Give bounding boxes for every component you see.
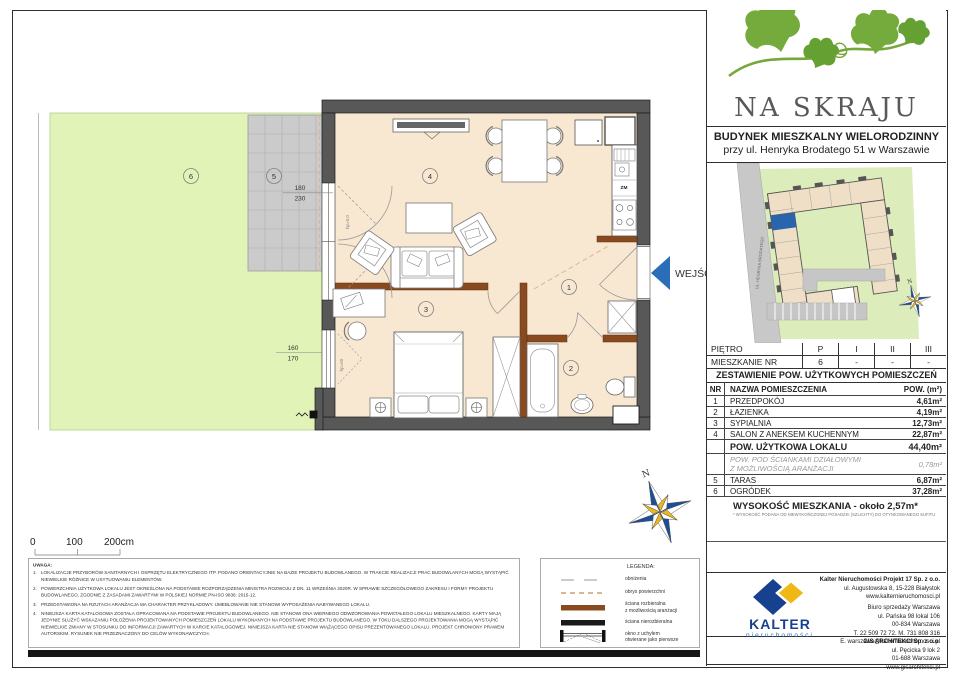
sill-height-terrace: hp=0,0	[345, 215, 350, 229]
note-item: 4.NINIEJSZA KARTA KATALOGOWA ZOSTAŁA OPR…	[33, 611, 515, 638]
legend-item-removable-wall: ściana rozbieralnaz możliwością aranżacj…	[541, 599, 699, 616]
svg-text:4: 4	[428, 172, 432, 181]
area-table-title: ZESTAWIENIE POW. UŻYTKOWYCH POMIESZCZEŃ	[707, 369, 946, 383]
bed	[394, 332, 463, 418]
note-item: 2.POWIERZCHNIA UŻYTKOWA LOKALU JEST OKRE…	[33, 586, 515, 599]
svg-text:0: 0	[30, 537, 36, 548]
area-row: 4 SALON Z ANEKSEM KUCHENNYM 22,87m²	[707, 429, 946, 440]
height-footnote: * WYSOKOŚĆ PODANA OD NIEWYKOŃCZONEJ POSA…	[733, 512, 946, 517]
bottom-divider-bar	[28, 650, 700, 657]
entrance-arrow-icon	[651, 256, 670, 290]
kalter-logo-icon	[751, 577, 807, 617]
wall-shaft	[613, 406, 639, 424]
area-row: 2 ŁAZIENKA 4,19m²	[707, 407, 946, 418]
height-label: WYSOKOŚĆ MIESZKANIA - około 2,57m*	[733, 501, 946, 512]
svg-text:1: 1	[567, 283, 571, 292]
bathtub	[527, 344, 558, 417]
compass-north-label: N	[641, 468, 652, 480]
site-plan: UL. HENRYKA BRODATEGO	[707, 163, 946, 343]
area-row: 6 OGRÓDEK 37,28m²	[707, 486, 946, 497]
note-item: 3.PRZEDSTAWIONA NA RZUTACH ARANŻACJA MA …	[33, 601, 515, 608]
svg-text:6: 6	[189, 172, 193, 181]
stove	[613, 200, 636, 230]
partition-area-row: POW. POD ŚCIANKAMI DZIAŁOWYMIZ MOŻLIWOŚC…	[707, 454, 946, 475]
legend-title: LEGENDA:	[627, 564, 655, 570]
apartment-height-note: WYSOKOŚĆ MIESZKANIA - około 2,57m* * WYS…	[707, 497, 946, 542]
dishwasher-label: ZM	[621, 185, 628, 191]
apartment-number-row: MIESZKANIE NR 6 - - -	[707, 356, 946, 369]
brand-name: NA SKRAJU	[707, 93, 946, 123]
entrance-label: WEJŚCIE	[675, 267, 706, 280]
svg-text:100: 100	[66, 537, 83, 548]
desk-chair	[348, 322, 366, 340]
notes-box: UWAGA: 1.LOKALIZACJE PRZYBORÓW SANITARNY…	[28, 558, 520, 648]
developer-logo: NA SKRAJU	[707, 10, 946, 127]
svg-text:230: 230	[295, 196, 306, 203]
legend-item-window: okno z uchyłemotwierane jako pierwsze	[541, 627, 699, 647]
building-title-line1: BUDYNEK MIESZKALNY WIELORODZINNY	[707, 131, 946, 143]
dining-table	[502, 120, 547, 182]
note-item: 1.LOKALIZACJE PRZYBORÓW SANITARNYCH I OS…	[33, 570, 515, 583]
outline-dash-icon	[541, 590, 625, 596]
developer-address: Kalter Nieruchomości Projekt 17 Sp. z o.…	[820, 576, 940, 602]
building-title-line2: przy ul. Henryka Brodatego 51 w Warszawi…	[707, 144, 946, 156]
window-symbol-icon	[541, 629, 625, 645]
floor-plan-drawing: ZM	[0, 0, 706, 560]
building-title: BUDYNEK MIESZKALNY WIELORODZINNY przy ul…	[707, 127, 946, 163]
svg-text:170: 170	[288, 356, 299, 363]
area-row: 3 SYPIALNIA 12,73m²	[707, 418, 946, 429]
area-row: 5 TARAS 6,87m²	[707, 475, 946, 486]
ivy-logo-icon	[719, 10, 935, 92]
hall-wardrobe	[608, 301, 636, 333]
area-row: 1 PRZEDPOKÓJ 4,61m²	[707, 396, 946, 407]
sofa	[391, 247, 463, 288]
bedroom-wardrobe	[493, 337, 520, 417]
architect-contact-box: GIS ARCHITEKCI Sp. z o.o. ul. Pęcicka 9 …	[707, 637, 946, 665]
svg-text:5: 5	[272, 172, 276, 181]
fridge	[605, 117, 635, 145]
svg-text:200cm: 200cm	[104, 537, 134, 548]
sill-height-window: hp=60	[339, 358, 344, 371]
svg-text:3: 3	[424, 305, 428, 314]
floor-row: PIĘTRO P I II III	[707, 343, 946, 356]
scale-bar: 0 100 200cm	[30, 537, 134, 555]
kalter-wordmark: KALTER	[725, 617, 835, 631]
total-area-row: POW. UŻYTKOWA LOKALU 44,40m²	[707, 440, 946, 454]
entrance-arrow: WEJŚCIE	[651, 256, 706, 290]
svg-text:2: 2	[569, 364, 573, 373]
legend-item-lowering: obniżenia	[541, 573, 699, 586]
site-parking	[767, 303, 867, 320]
developer-contact-box: KALTER nieruchomości Kalter Nieruchomośc…	[707, 572, 946, 637]
area-table-header: NR NAZWA POMIESZCZENIA POW. (m²)	[707, 383, 946, 396]
svg-text:160: 160	[288, 345, 299, 352]
catalog-card-page: ZM	[0, 0, 960, 678]
legend-box: LEGENDA: obniżenia obrys powierzchni ści…	[540, 558, 700, 648]
fixed-wall-icon	[541, 619, 625, 627]
architect-address: GIS ARCHITEKCI Sp. z o.o. ul. Pęcicka 9 …	[863, 638, 940, 672]
legend-item-outline: obrys powierzchni	[541, 586, 699, 599]
svg-text:180: 180	[295, 185, 306, 192]
lowering-line-icon	[541, 577, 625, 583]
compass-rose-icon: N	[614, 458, 703, 554]
coffee-table	[406, 203, 452, 233]
removable-wall-icon	[541, 604, 625, 612]
info-panel: NA SKRAJU BUDYNEK MIESZKALNY WIELORODZIN…	[706, 10, 946, 666]
notes-title: UWAGA:	[33, 562, 515, 569]
